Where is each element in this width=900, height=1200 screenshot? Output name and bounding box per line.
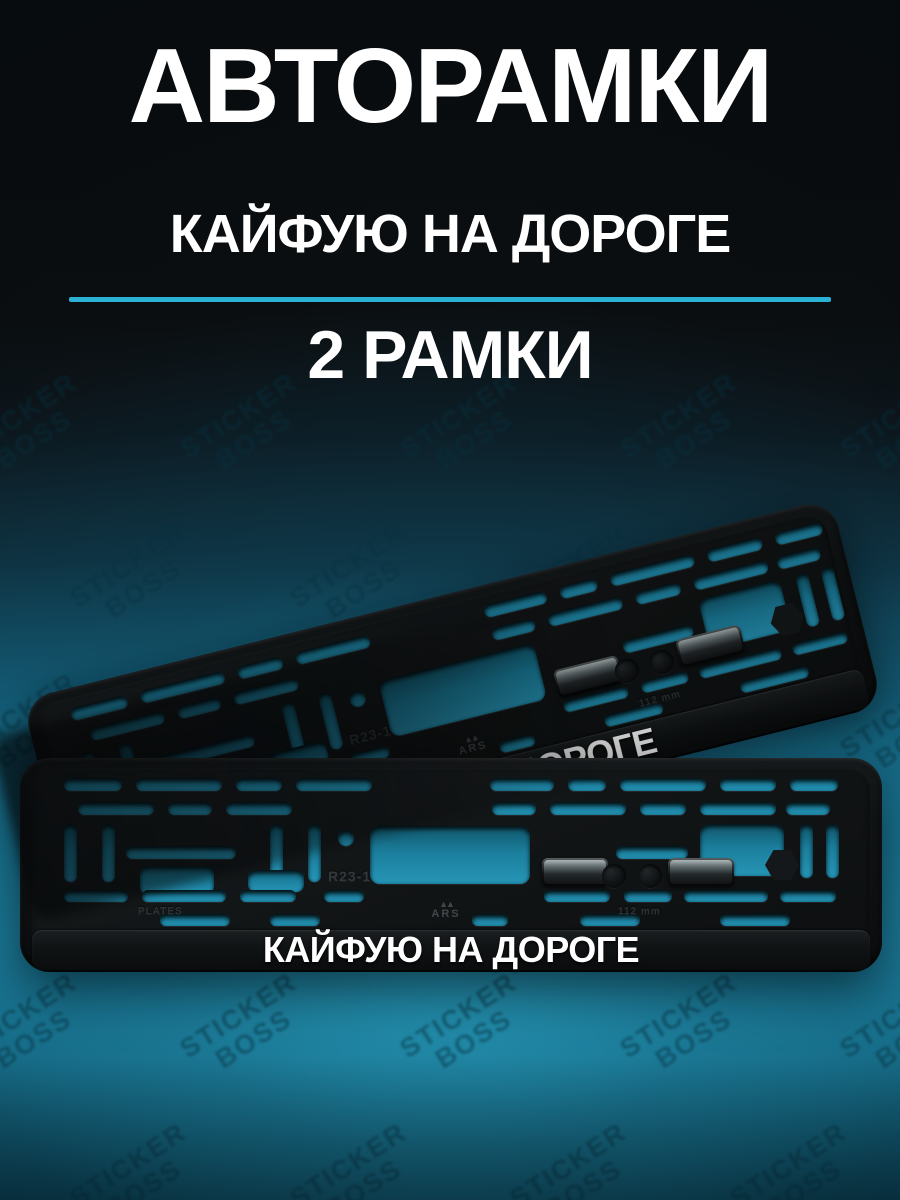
frame-slot: [64, 778, 122, 791]
frame-slot: [720, 914, 790, 926]
frame-slot: [102, 824, 115, 882]
frame-slot: [640, 670, 689, 693]
frame-slot: [176, 696, 222, 719]
frame-slot: [624, 890, 672, 902]
frame-slot: [776, 547, 822, 570]
watermark-text: STICKERBOSS: [66, 518, 207, 636]
frame-slot: [136, 778, 222, 791]
frame-slot: [236, 656, 284, 680]
frame-slot: [634, 582, 682, 606]
frame-slot: [559, 578, 599, 600]
frame-clip: [668, 858, 734, 886]
frame-slot: [296, 778, 372, 791]
frame-slot: [370, 826, 530, 884]
frame-slot: [338, 830, 354, 846]
frame-slot: [820, 566, 846, 622]
page-title: АВТОРАМКИ: [0, 33, 900, 139]
frame-slot: [236, 778, 282, 791]
frame-slot: [472, 914, 508, 926]
frame-slot: [64, 824, 77, 882]
watermark-text: STICKERBOSS: [836, 968, 900, 1086]
frame-slot: [78, 802, 154, 815]
frame-slot: [547, 596, 624, 627]
frame-slot: [70, 695, 129, 722]
watermark-text: STICKERBOSS: [506, 1118, 647, 1200]
watermark-text: STICKERBOSS: [0, 968, 97, 1086]
certification-mark-icon: [602, 864, 626, 888]
frame-slot: [226, 802, 292, 815]
frame-slot: [64, 890, 128, 902]
accent-divider: [69, 297, 831, 302]
license-frame-front: R23-1 PLATES 112 mm ▲▲ ARS КАЙФУЮ НА ДОР…: [20, 758, 882, 972]
frame-slot: [324, 890, 364, 902]
subtitle: КАЙФУЮ НА ДОРОГЕ: [0, 207, 900, 261]
frame-slot: [609, 553, 696, 586]
product-image-canvas: STICKERBOSSSTICKERBOSSSTICKERBOSSSTICKER…: [0, 0, 900, 1200]
frame-slot: [483, 590, 548, 618]
frame-slot: [248, 870, 304, 892]
watermark-text: STICKERBOSS: [726, 1118, 867, 1200]
frame-slot: [640, 802, 686, 815]
frame-slot: [492, 802, 536, 815]
frame-text-bar: КАЙФУЮ НА ДОРОГЕ: [32, 930, 870, 970]
watermark-text: STICKERBOSS: [66, 1118, 207, 1200]
frame-slot: [490, 778, 554, 791]
frame-slot: [270, 914, 320, 926]
frame-slot: [684, 890, 768, 902]
frame-slot: [800, 824, 813, 878]
frame-slot: [774, 522, 824, 546]
frame-slot: [550, 802, 626, 815]
frame-slot: [378, 643, 547, 738]
frame-slogan: КАЙФУЮ НА ДОРОГЕ: [263, 930, 639, 970]
frame-clip: [542, 858, 608, 886]
frame-slot: [544, 890, 610, 902]
frame-slot: [348, 689, 367, 708]
certification-mark-icon: [638, 864, 662, 888]
count-label: 2 РАМКИ: [0, 321, 900, 389]
mold-size-mark: 112 mm: [618, 906, 661, 917]
frame-slot: [126, 846, 236, 859]
frame-slot: [791, 631, 848, 656]
frame-slot: [720, 778, 776, 791]
frame-slot: [168, 802, 212, 815]
mold-code: R23-1: [328, 868, 371, 884]
frame-slot: [491, 618, 537, 641]
frame-slot: [295, 634, 372, 665]
frame-slot: [790, 778, 838, 791]
watermark-text: STICKERBOSS: [616, 968, 757, 1086]
frame-slot: [620, 778, 706, 791]
ars-logo: ▲▲ ARS: [425, 900, 467, 920]
frame-slot: [89, 710, 166, 741]
frame-slot: [780, 890, 836, 902]
frame-slot: [706, 537, 763, 563]
watermark-text: STICKERBOSS: [176, 968, 317, 1086]
frame-slot: [786, 802, 830, 815]
mold-plates-mark: PLATES: [138, 906, 183, 917]
frame-slot: [308, 824, 321, 882]
frame-slot: [826, 824, 839, 878]
frame-slot: [240, 890, 296, 902]
frame-slot: [568, 778, 606, 791]
frame-slot: [700, 802, 776, 815]
watermark-text: STICKERBOSS: [396, 968, 537, 1086]
frame-slot: [142, 890, 226, 902]
watermark-text: STICKERBOSS: [286, 1118, 427, 1200]
